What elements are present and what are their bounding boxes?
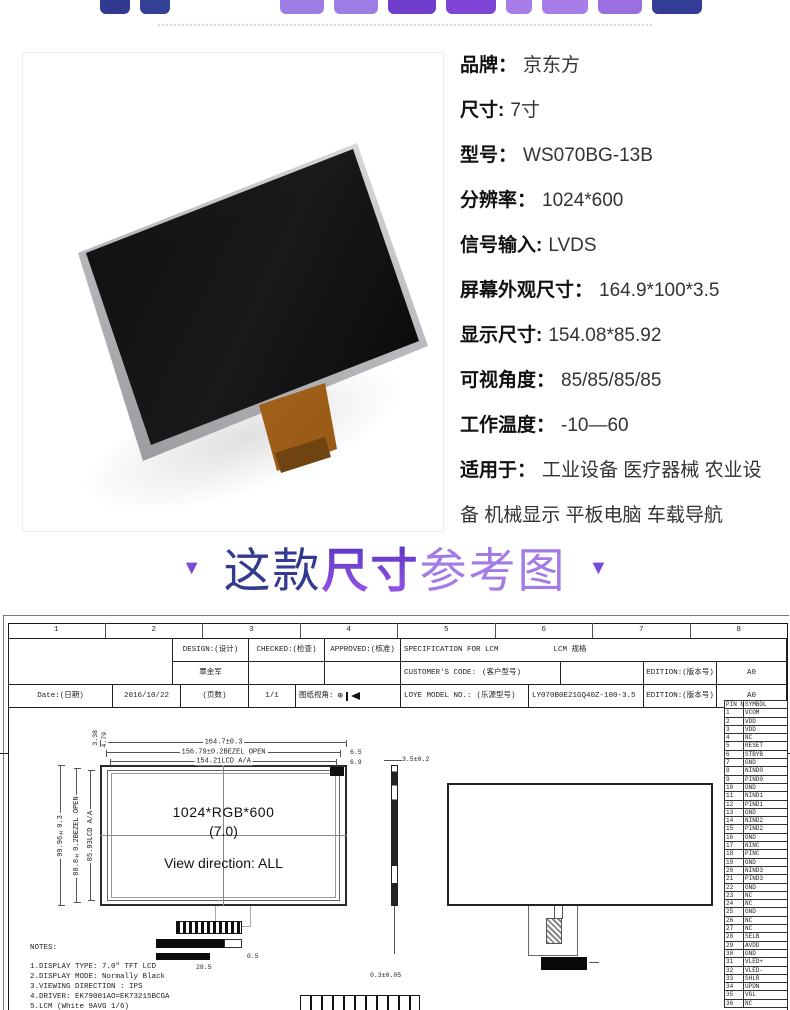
spec-value: 京东方 xyxy=(523,55,580,76)
model-label: LOYE MODEL NO.: xyxy=(404,692,472,701)
spec-value: LVDS xyxy=(548,235,596,256)
zone-number: 8 xyxy=(691,623,788,638)
edition-label-cell-2: EDITION:(版本号) xyxy=(643,684,717,708)
pin-symbol: VGL xyxy=(744,991,788,999)
pin-row: 1 VCOM xyxy=(725,709,788,717)
pin-symbol: NC xyxy=(744,734,788,742)
spec-title-cell: SPECIFICATION FOR LCM LCM 规格 xyxy=(400,638,787,662)
pin-row: 13 GND xyxy=(725,808,788,816)
banner-glyph xyxy=(652,0,702,14)
pin-symbol: VLED- xyxy=(744,966,788,974)
dim-height-active: 85.93LCD A/A xyxy=(90,770,91,901)
banner-glyph xyxy=(598,0,642,14)
dim-height-bezel: 88.8±0.2BEZEL OPEN xyxy=(76,768,77,903)
pin-no: 11 xyxy=(725,792,744,800)
pin-symbol: VDD xyxy=(744,717,788,725)
dim-right-bottom: 6.9 xyxy=(350,759,362,766)
pin-no: 20 xyxy=(725,866,744,874)
pin-row: 29 AVDD xyxy=(725,941,788,949)
zone-number-row: 12345678 xyxy=(8,623,787,638)
pin-row: 34 UPDN xyxy=(725,983,788,991)
date-label-cell: Date:(日期) xyxy=(8,684,113,708)
pin-no: 19 xyxy=(725,858,744,866)
dim-width-outline: 164.7±0.3 xyxy=(100,742,347,743)
pin-no: 6 xyxy=(725,750,744,758)
note-line: 2.DISPLAY MODE: Normally Black xyxy=(30,972,170,982)
pin-no: 31 xyxy=(725,958,744,966)
connector-detail-end xyxy=(224,939,242,948)
approved-label-cell: APPROVED:(核准) xyxy=(324,638,401,662)
customer-code-value-cell xyxy=(560,661,644,685)
pin-row: 6 STBYB xyxy=(725,750,788,758)
pages-value-cell: 1/1 xyxy=(248,684,296,708)
back-connector-leader xyxy=(589,962,599,963)
pin-no: 7 xyxy=(725,759,744,767)
pin-symbol: PIND0 xyxy=(744,775,788,783)
projection-symbol-icon: ⊕ xyxy=(338,692,360,701)
drawing-notes: NOTES: 1.DISPLAY TYPE: 7.0" TFT LCD2.DIS… xyxy=(30,943,170,1010)
pin-table-body: 1 VCOM 2 VDD 3 VDD 4 NC xyxy=(725,709,788,1008)
banner-glyph xyxy=(388,0,436,14)
spec-label: 型号： xyxy=(460,145,517,166)
notes-heading: NOTES: xyxy=(30,943,170,953)
back-connector xyxy=(541,957,587,970)
pin-symbol: NIND1 xyxy=(744,792,788,800)
pin-symbol: PIND1 xyxy=(744,800,788,808)
pin-no: 29 xyxy=(725,941,744,949)
spec-row: 显示尺寸:154.08*85.92 xyxy=(460,313,772,358)
dim-width-bezel: 156.79±0.2BEZEL OPEN xyxy=(106,752,341,753)
pin-symbol: NC xyxy=(744,891,788,899)
back-view-outline xyxy=(447,783,713,906)
pin-row: 4 NC xyxy=(725,734,788,742)
pin-no: 32 xyxy=(725,966,744,974)
section-title-prefix: 这款 xyxy=(224,544,322,597)
pin-row: 16 GND xyxy=(725,833,788,841)
pin-no: 33 xyxy=(725,974,744,982)
pin-no: 8 xyxy=(725,767,744,775)
spec-row: 工作温度：-10—60 xyxy=(460,403,772,448)
spec-row: 品牌：京东方 xyxy=(460,43,772,88)
spec-row: 型号：WS070BG-13B xyxy=(460,133,772,178)
view-angle-cell: 图纸视角: ⊕ xyxy=(295,684,401,708)
pin-symbol: VLED+ xyxy=(744,958,788,966)
spec-label: 屏幕外观尺寸： xyxy=(460,280,593,301)
zone-number: 5 xyxy=(398,623,496,638)
pin-symbol: VCOM xyxy=(744,709,788,717)
note-line: 1.DISPLAY TYPE: 7.0" TFT LCD xyxy=(30,962,170,972)
pin-no: 26 xyxy=(725,916,744,924)
pin-no: 24 xyxy=(725,900,744,908)
checked-value-cell xyxy=(248,661,325,685)
pin-symbol: VDD xyxy=(744,725,788,733)
spec-title-cn: LCM 规格 xyxy=(554,646,587,655)
pin-symbol: AVDD xyxy=(744,941,788,949)
pin-no: 13 xyxy=(725,808,744,816)
dim-tail-width: 28.5 xyxy=(196,964,212,971)
notes-list: 1.DISPLAY TYPE: 7.0" TFT LCD2.DISPLAY MO… xyxy=(30,962,170,1010)
spec-value: WS070BG-13B xyxy=(523,145,653,166)
spec-value: 154.08*85.92 xyxy=(548,325,661,346)
pin-symbol: SHLR xyxy=(744,974,788,982)
pin-symbol: GND xyxy=(744,949,788,957)
pin-symbol: PIND3 xyxy=(744,875,788,883)
pin-row: 8 NIND0 xyxy=(725,767,788,775)
note-line: 5.LCM (White 9AVG 1/6) xyxy=(30,1002,170,1010)
pin-no: 22 xyxy=(725,883,744,891)
spec-label: 品牌： xyxy=(460,55,517,76)
bottom-connector-comb xyxy=(300,995,420,1010)
pin-row: 2 VDD xyxy=(725,717,788,725)
pin-no: 9 xyxy=(725,775,744,783)
pin-row: 27 NC xyxy=(725,925,788,933)
dim-width-active: 154.21LCD A/A xyxy=(110,761,337,762)
title-block-empty-cell xyxy=(8,638,173,685)
pin-row: 31 VLED+ xyxy=(725,958,788,966)
pin-symbol: PINC xyxy=(744,850,788,858)
pin-no: 21 xyxy=(725,875,744,883)
banner-glyph xyxy=(280,0,324,14)
pin-symbol: NIND0 xyxy=(744,767,788,775)
pin-row: 35 VGL xyxy=(725,991,788,999)
note-line: 3.VIEWING DIRECTION : IPS xyxy=(30,982,170,992)
side-view-dim-line xyxy=(384,760,404,761)
banner-glyph xyxy=(446,0,496,14)
view-angle-label: 图纸视角: xyxy=(299,692,334,701)
model-label-cell: LOYE MODEL NO.: (乐源型号) xyxy=(400,684,529,708)
spec-row: 可视角度：85/85/85/85 xyxy=(460,358,772,403)
dimension-drawing: 12345678 D B DESIGN:(设计) CHECKED:(检查) AP… xyxy=(0,612,790,1010)
zone-number: 2 xyxy=(106,623,204,638)
pin-row: 30 GND xyxy=(725,949,788,957)
pin-table: PIN NO SYMBOL 1 VCOM 2 VDD xyxy=(724,700,788,1008)
side-view-fpc-line xyxy=(394,906,395,954)
pin-no: 17 xyxy=(725,842,744,850)
pin-no: 1 xyxy=(725,709,744,717)
banner-glyph xyxy=(542,0,588,14)
pin-row: 14 NIND2 xyxy=(725,817,788,825)
spec-row: 适用于：工业设备 医疗器械 农业设备 机械显示 平板电脑 车载导航 xyxy=(460,448,772,538)
section-title-suffix: 参考图 xyxy=(420,544,567,597)
dim-height-outline: 99.96±0.3 xyxy=(60,765,61,906)
pin-symbol: GND xyxy=(744,808,788,816)
banner-glyph xyxy=(140,0,170,14)
pin-no: 15 xyxy=(725,825,744,833)
back-fpc-sticker xyxy=(546,918,562,944)
pin-symbol: GND xyxy=(744,783,788,791)
spec-label: 信号输入: xyxy=(460,235,542,256)
pin-symbol: NC xyxy=(744,925,788,933)
zone-tick xyxy=(0,753,9,754)
spec-label: 适用于： xyxy=(460,460,536,481)
edition-value-cell: A0 xyxy=(716,661,787,685)
spec-value: 7寸 xyxy=(510,100,540,121)
pin-row: 17 NINC xyxy=(725,842,788,850)
pin-row: 10 GND xyxy=(725,783,788,791)
pin-no: 35 xyxy=(725,991,744,999)
clipped-banner-title xyxy=(100,0,720,15)
spec-label: 分辨率： xyxy=(460,190,536,211)
spec-row: 屏幕外观尺寸：164.9*100*3.5 xyxy=(460,268,772,313)
spec-label: 工作温度： xyxy=(460,415,555,436)
side-view-profile xyxy=(391,765,398,906)
pin-symbol: NINC xyxy=(744,842,788,850)
customer-code-cell: CUSTOMER'S CODE: (客户型号) xyxy=(400,661,561,685)
pin-row: 22 GND xyxy=(725,883,788,891)
section-title: ▼这款尺寸参考图▼ xyxy=(0,541,790,605)
pin-row: 23 NC xyxy=(725,891,788,899)
pin-row: 28 SELB xyxy=(725,933,788,941)
zone-number: 7 xyxy=(593,623,691,638)
spec-row: 信号输入:LVDS xyxy=(460,223,772,268)
pin-row: 33 SHLR xyxy=(725,974,788,982)
pin-no: 12 xyxy=(725,800,744,808)
pin-no: 10 xyxy=(725,783,744,791)
pin-row: 19 GND xyxy=(725,858,788,866)
pin-row: 11 NIND1 xyxy=(725,792,788,800)
size-label: (7.0) xyxy=(100,823,347,839)
pin-symbol: GND xyxy=(744,858,788,866)
pin-row: 25 GND xyxy=(725,908,788,916)
projection-cone-icon xyxy=(351,692,360,700)
spec-value: 1024*600 xyxy=(542,190,623,211)
front-view-connector xyxy=(330,767,344,776)
pin-row: 7 GND xyxy=(725,759,788,767)
pin-row: 18 PINC xyxy=(725,850,788,858)
dim-corner-b: 4.79 xyxy=(101,732,108,748)
pin-no: 16 xyxy=(725,833,744,841)
product-page: 品牌：京东方 尺寸:7寸 型号：WS070BG-13B 分辨率：1024*600… xyxy=(0,0,790,1010)
pin-symbol: SELB xyxy=(744,933,788,941)
pin-no: 5 xyxy=(725,742,744,750)
product-photo xyxy=(22,52,444,532)
spec-title: SPECIFICATION FOR LCM xyxy=(404,646,499,655)
pin-symbol: GND xyxy=(744,833,788,841)
symbol-header: SYMBOL xyxy=(744,701,788,709)
pin-no: 2 xyxy=(725,717,744,725)
banner-glyph xyxy=(506,0,532,14)
zone-number: 4 xyxy=(301,623,399,638)
dim-tail-offset: 0.5 xyxy=(247,953,259,960)
spec-row: 尺寸:7寸 xyxy=(460,88,772,133)
design-label-cell: DESIGN:(设计) xyxy=(172,638,249,662)
pin-row: 24 NC xyxy=(725,900,788,908)
date-value-cell: 2016/10/22 xyxy=(112,684,181,708)
circle-plus-icon: ⊕ xyxy=(338,692,343,701)
pin-row: 15 PIND2 xyxy=(725,825,788,833)
pin-no: 3 xyxy=(725,725,744,733)
pin-no: 25 xyxy=(725,908,744,916)
model-label-cn: (乐源型号) xyxy=(477,692,516,701)
dim-fpc: 0.3±0.05 xyxy=(370,972,401,979)
pin-symbol: GND xyxy=(744,908,788,916)
pin-no: 34 xyxy=(725,983,744,991)
fpc-comb-detail xyxy=(176,921,242,934)
pin-no: 30 xyxy=(725,949,744,957)
checked-label-cell: CHECKED:(检查) xyxy=(248,638,325,662)
pin-row: 9 PIND0 xyxy=(725,775,788,783)
banner-glyph xyxy=(100,0,130,14)
pin-no: 27 xyxy=(725,925,744,933)
pin-no: 4 xyxy=(725,734,744,742)
pin-symbol: GND xyxy=(744,883,788,891)
dim-right-top: 6.5 xyxy=(350,749,362,756)
pin-symbol: NIND3 xyxy=(744,866,788,874)
spec-label: 可视角度： xyxy=(460,370,555,391)
banner-glyph xyxy=(334,0,378,14)
spec-row: 分辨率：1024*600 xyxy=(460,178,772,223)
customer-code-label: CUSTOMER'S CODE: xyxy=(404,669,476,678)
pin-no-header: PIN NO xyxy=(725,701,744,709)
pin-row: 20 NIND3 xyxy=(725,866,788,874)
pin-no: 23 xyxy=(725,891,744,899)
pin-symbol: UPDN xyxy=(744,983,788,991)
pin-row: 5 RESET xyxy=(725,742,788,750)
banner-gap xyxy=(180,0,270,14)
approved-value-cell xyxy=(324,661,401,685)
pin-no: 36 xyxy=(725,999,744,1007)
front-view-labels: 1024*RGB*600 (7.0) View direction: ALL xyxy=(100,804,347,871)
dim-corner-a: 3.38 xyxy=(92,730,99,746)
pin-row: 12 PIND1 xyxy=(725,800,788,808)
designer-name-cell: 覃金军 xyxy=(172,661,249,685)
resolution-label: 1024*RGB*600 xyxy=(100,804,347,820)
back-fpc-wire xyxy=(562,906,563,919)
pin-row: 26 NC xyxy=(725,916,788,924)
pin-no: 14 xyxy=(725,817,744,825)
zone-number: 6 xyxy=(496,623,594,638)
banner-dotted-divider xyxy=(158,24,652,26)
pin-no: 28 xyxy=(725,933,744,941)
spec-label: 显示尺寸: xyxy=(460,325,542,346)
spec-label: 尺寸: xyxy=(460,100,504,121)
section-title-emphasis: 尺寸 xyxy=(322,544,420,597)
pin-symbol: STBYB xyxy=(744,750,788,758)
zone-number: 3 xyxy=(203,623,301,638)
down-arrow-icon: ▼ xyxy=(182,557,202,579)
pin-no: 18 xyxy=(725,850,744,858)
customer-code-cn: (客户型号) xyxy=(482,669,521,678)
zone-number: 1 xyxy=(8,623,106,638)
spec-value: -10—60 xyxy=(561,415,629,436)
pin-row: 32 VLED- xyxy=(725,966,788,974)
spec-value: 85/85/85/85 xyxy=(561,370,661,391)
projection-bar-icon xyxy=(346,692,348,701)
view-direction-label: View direction: ALL xyxy=(100,855,347,871)
pin-symbol: NC xyxy=(744,999,788,1007)
pin-symbol: GND xyxy=(744,759,788,767)
pin-symbol: RESET xyxy=(744,742,788,750)
pages-label-cell: (页数) xyxy=(180,684,249,708)
pin-symbol: NIND2 xyxy=(744,817,788,825)
pin-row: 36 NC xyxy=(725,999,788,1007)
model-value-cell: LY070B0E21GQ40Z-100-3.5 xyxy=(528,684,644,708)
dim-thickness: 3.5±0.2 xyxy=(402,756,429,763)
spec-list: 品牌：京东方 尺寸:7寸 型号：WS070BG-13B 分辨率：1024*600… xyxy=(460,43,772,538)
pin-symbol: NC xyxy=(744,900,788,908)
pin-symbol: NC xyxy=(744,916,788,924)
pin-row: 3 VDD xyxy=(725,725,788,733)
down-arrow-icon: ▼ xyxy=(589,557,609,579)
note-line: 4.DRIVER: EK79001AO=EK73215BCGA xyxy=(30,992,170,1002)
edition-label-cell: EDITION:(版本号) xyxy=(643,661,717,685)
pin-symbol: PIND2 xyxy=(744,825,788,833)
spec-value: 164.9*100*3.5 xyxy=(599,280,719,301)
pin-row: 21 PIND3 xyxy=(725,875,788,883)
